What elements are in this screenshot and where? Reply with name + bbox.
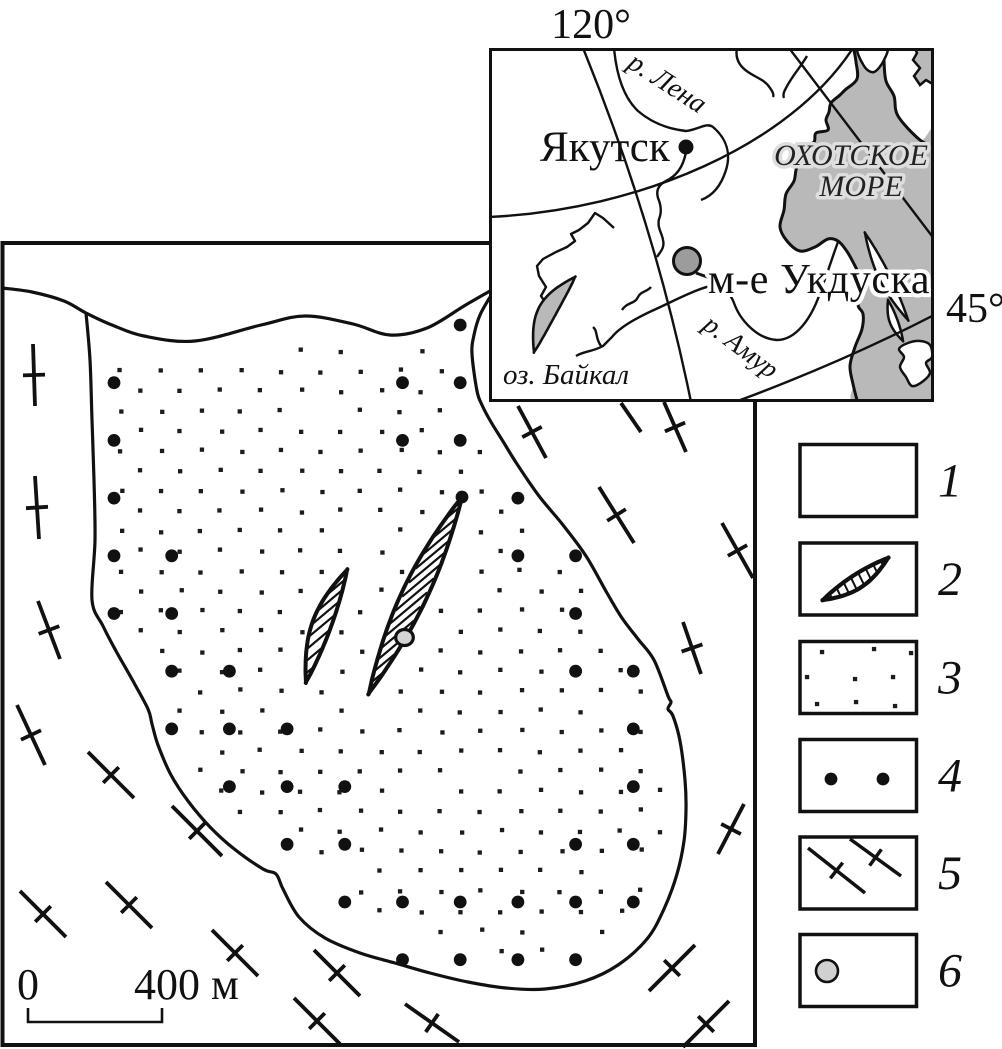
- svg-text:400 м: 400 м: [134, 960, 239, 1009]
- svg-text:2: 2: [938, 553, 962, 606]
- svg-text:Якутск: Якутск: [540, 124, 670, 171]
- svg-text:МОРЕ: МОРЕ: [818, 170, 902, 203]
- svg-text:4: 4: [938, 750, 962, 803]
- svg-text:м-е Укдуска: м-е Укдуска: [708, 257, 930, 303]
- svg-text:0: 0: [17, 960, 39, 1009]
- svg-text:1: 1: [938, 455, 962, 508]
- svg-text:3: 3: [937, 652, 962, 705]
- svg-text:6: 6: [938, 945, 962, 998]
- svg-text:5: 5: [938, 847, 962, 900]
- svg-text:45°: 45°: [946, 286, 1002, 332]
- svg-text:120°: 120°: [551, 2, 631, 48]
- svg-text:ОХОТСКОЕ: ОХОТСКОЕ: [774, 139, 928, 172]
- svg-text:оз. Байкал: оз. Байкал: [503, 359, 629, 391]
